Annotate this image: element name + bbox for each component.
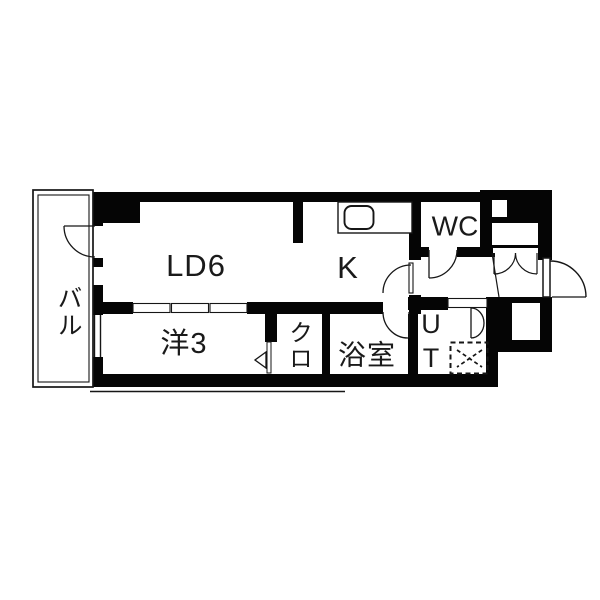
wall-stub-ld-k <box>293 200 303 243</box>
room-label-western-room: 洋3 <box>160 329 207 359</box>
sliding-door-marker <box>255 352 266 368</box>
sliding-panel-2 <box>172 304 209 313</box>
wall-left-4 <box>93 357 103 374</box>
room-label-toilet: WC <box>432 211 479 240</box>
k-door-leaf <box>409 263 413 293</box>
wall-ut-right <box>486 297 498 374</box>
closet-door-arc-right <box>516 253 538 274</box>
folding-door-arc-top <box>471 308 484 323</box>
shoe-closet-opening <box>493 248 538 253</box>
wall-wc-bottom-right <box>457 247 485 257</box>
shoe-closet-double-doors <box>492 253 537 297</box>
kitchen-hall-door <box>383 263 413 293</box>
washing-machine-pan <box>451 343 488 374</box>
room-label-living-dining: LD6 <box>166 250 226 282</box>
folding-door-arc-bottom <box>471 323 484 338</box>
wall-left-3 <box>93 285 103 315</box>
room-label-bathroom: 浴室 <box>338 340 396 369</box>
wall-left-1 <box>93 202 103 226</box>
wall-top <box>93 192 482 202</box>
entrance-door <box>543 258 586 297</box>
wc-door <box>429 250 457 278</box>
entrance-door-arc <box>550 261 586 297</box>
wall-band-1 <box>103 302 133 314</box>
k-door-arc <box>383 265 411 293</box>
sliding-panel-1 <box>133 304 170 313</box>
shoe-closet-box <box>492 223 538 245</box>
balcony-door <box>64 226 95 257</box>
pipe-space-bottom <box>512 303 540 340</box>
wall-left-2 <box>93 258 103 267</box>
floor-plan-canvas: LD6 K WC 洋3 浴室 バル クロ UT <box>0 0 600 600</box>
room-label-balcony: バル <box>55 285 81 339</box>
wc-door-arc <box>429 250 457 278</box>
entrance-door-leaf <box>543 258 550 297</box>
sliding-panel-3 <box>210 304 247 313</box>
wall-closet-bath <box>322 314 330 374</box>
balcony-door-arc <box>64 226 95 257</box>
room-label-utility: UT <box>417 309 445 377</box>
floor-plan-drawing <box>0 0 600 600</box>
ut-folding-door <box>471 308 484 338</box>
washer-pan-cross-2 <box>457 350 482 367</box>
closet-door-arc-left <box>494 253 516 274</box>
ut-door-track <box>448 299 487 308</box>
bedroom-balcony-window <box>95 315 101 357</box>
wall-bedroom-closet <box>265 314 277 342</box>
room-label-closet: クロ <box>285 320 310 372</box>
closet-sliding-panel <box>267 342 271 373</box>
bath-door-arc <box>383 312 408 338</box>
bath-door <box>383 312 409 338</box>
entry-step-line <box>492 253 499 297</box>
kitchen-counter <box>338 202 412 233</box>
ld-bedroom-sliding-panels <box>133 304 247 313</box>
room-label-kitchen: K <box>337 252 359 284</box>
wall-band-2 <box>247 302 383 314</box>
kitchen-sink <box>345 206 374 229</box>
pipe-space-top <box>492 200 507 217</box>
wall-wc-bottom-left <box>421 247 429 257</box>
